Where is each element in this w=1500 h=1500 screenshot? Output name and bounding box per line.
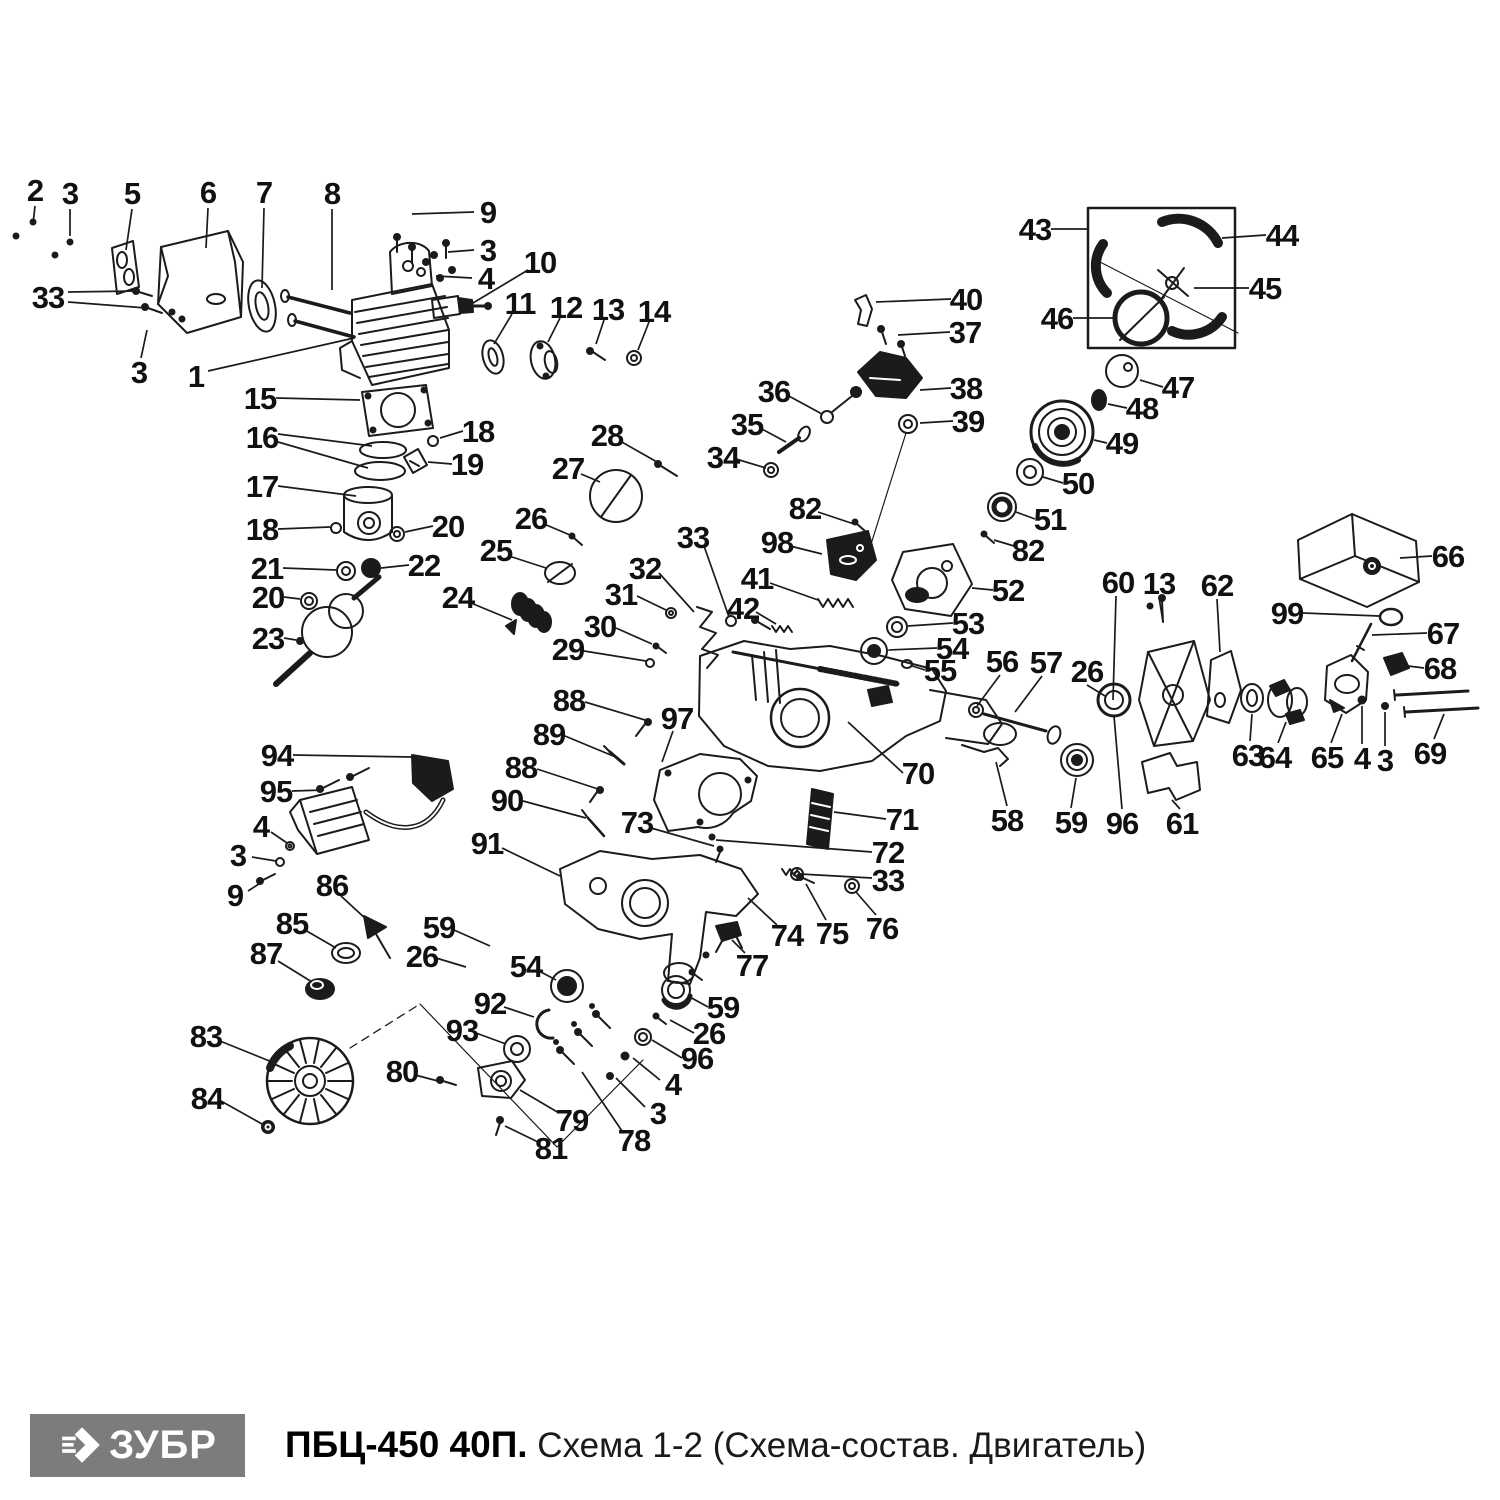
part-label: 13 — [592, 292, 625, 327]
part-label: 4 — [253, 809, 271, 844]
part-label: 4 — [1354, 741, 1372, 776]
part-label: 3 — [1377, 743, 1394, 778]
part-label: 1 — [188, 359, 205, 394]
zubr-logo: ЗУБР — [30, 1414, 245, 1477]
part-label: 11 — [505, 286, 537, 321]
part-label: 81 — [535, 1131, 568, 1166]
part-label: 26 — [1071, 654, 1104, 689]
leader-line — [276, 398, 360, 400]
leader-line — [1217, 599, 1220, 652]
leader-line — [790, 546, 822, 554]
part-label: 25 — [480, 533, 513, 568]
part-label: 43 — [1019, 212, 1052, 247]
leader-line — [305, 930, 336, 948]
part-label: 91 — [471, 826, 504, 861]
leader-line — [278, 442, 368, 468]
exploded-parts-diagram: 2356789341011121314333115161718181920212… — [0, 0, 1500, 1390]
part-label: 65 — [1311, 740, 1344, 775]
leader-line — [1408, 666, 1424, 668]
part-label: 89 — [533, 717, 566, 752]
part-label: 82 — [1012, 533, 1044, 568]
diagram-artwork — [14, 208, 1479, 1147]
leader-line — [509, 556, 546, 568]
model-name: ПБЦ-450 40П. — [285, 1424, 528, 1465]
leader-line — [293, 755, 412, 757]
leader-line — [206, 208, 208, 248]
leader-line — [633, 1058, 660, 1080]
part-label: 60 — [1102, 565, 1134, 600]
leader-line — [537, 769, 598, 789]
leader-line — [834, 812, 886, 819]
part-label: 64 — [1259, 740, 1293, 775]
part-label: 52 — [992, 573, 1024, 608]
part-label: 44 — [1266, 218, 1300, 253]
part-label: 88 — [553, 683, 586, 718]
part-label: 48 — [1126, 391, 1159, 426]
part-label: 59 — [1055, 805, 1088, 840]
part-label: 74 — [771, 918, 805, 953]
part-label: 9 — [227, 878, 244, 913]
leader-line — [920, 388, 951, 390]
part-label: 90 — [491, 783, 523, 818]
part-label: 3 — [650, 1096, 667, 1131]
leader-line — [544, 524, 570, 535]
leader-line — [972, 588, 993, 590]
part-label: 96 — [681, 1041, 714, 1076]
part-label: 2 — [27, 173, 43, 208]
leader-line — [271, 832, 287, 843]
part-label: 18 — [246, 512, 279, 547]
part-label: 95 — [260, 774, 293, 809]
leader-line — [252, 857, 276, 861]
part-label: 47 — [1162, 370, 1194, 405]
leader-line — [1016, 512, 1035, 519]
leader-line — [278, 961, 312, 982]
part-label: 84 — [191, 1081, 225, 1116]
part-label: 66 — [1432, 539, 1465, 574]
part-label: 37 — [949, 315, 981, 350]
part-label: 86 — [316, 868, 349, 903]
leader-line — [920, 421, 953, 423]
leader-line — [1108, 404, 1127, 408]
part-label: 51 — [1034, 502, 1067, 537]
leader-line — [278, 527, 330, 529]
part-label: 46 — [1041, 301, 1074, 336]
leader-line — [126, 209, 132, 250]
part-label: 75 — [816, 916, 849, 951]
leader-line — [1043, 477, 1063, 483]
schema-name: Схема 1-2 (Схема-состав. Двигатель) — [528, 1426, 1147, 1465]
part-label: 26 — [515, 501, 548, 536]
leader-line — [292, 790, 324, 791]
part-label: 88 — [505, 750, 538, 785]
part-label: 33 — [872, 863, 905, 898]
part-label: 3 — [230, 838, 247, 873]
leader-line — [448, 250, 474, 252]
leader-line — [584, 651, 646, 661]
leader-line — [405, 526, 433, 532]
part-label: 10 — [524, 245, 556, 280]
leader-line — [1250, 714, 1252, 741]
part-label: 56 — [986, 644, 1019, 679]
leader-line — [220, 1041, 272, 1062]
part-label: 16 — [246, 420, 279, 455]
leader-line — [1303, 613, 1379, 616]
part-label: 92 — [474, 986, 506, 1021]
part-label: 71 — [886, 802, 919, 837]
leader-line — [616, 628, 652, 644]
part-label: 9 — [480, 195, 497, 230]
zubr-arrow-icon — [58, 1422, 104, 1468]
part-label: 97 — [661, 701, 693, 736]
leader-line — [1015, 676, 1042, 712]
leader-line — [787, 395, 822, 414]
leader-line — [436, 958, 466, 967]
leader-line — [68, 302, 146, 308]
leader-line — [454, 930, 490, 946]
part-label: 8 — [324, 176, 341, 211]
leader-line — [736, 459, 766, 468]
leader-line — [278, 434, 372, 446]
part-label: 28 — [591, 418, 624, 453]
part-label: 42 — [727, 591, 759, 626]
leader-line — [278, 486, 356, 496]
leader-line — [440, 431, 463, 438]
leader-line — [428, 462, 452, 464]
part-label: 29 — [552, 632, 585, 667]
part-label: 73 — [621, 805, 654, 840]
part-label: 38 — [950, 371, 983, 406]
part-label: 14 — [638, 294, 672, 329]
zubr-logo-text: ЗУБР — [109, 1425, 217, 1465]
leader-line — [670, 1020, 694, 1033]
leader-line — [876, 299, 951, 302]
part-label: 45 — [1249, 271, 1282, 306]
part-label: 20 — [252, 580, 284, 615]
leader-line — [760, 428, 786, 442]
leader-line — [284, 638, 296, 640]
leader-line — [1222, 235, 1266, 238]
part-label: 76 — [866, 911, 899, 946]
leader-line — [68, 291, 134, 292]
part-label: 4 — [665, 1067, 683, 1102]
leader-line — [800, 874, 872, 878]
leader-line — [616, 1078, 645, 1107]
leader-line — [770, 583, 818, 600]
leader-line — [1140, 380, 1163, 387]
leader-line — [848, 722, 903, 773]
part-label: 78 — [618, 1123, 651, 1158]
part-label: 80 — [386, 1054, 418, 1089]
part-label: 15 — [244, 381, 277, 416]
part-label: 17 — [246, 469, 278, 504]
part-label: 87 — [250, 936, 282, 971]
part-label: 83 — [190, 1019, 223, 1054]
leader-line — [504, 1007, 534, 1017]
diagram-canvas: 2356789341011121314333115161718181920212… — [0, 0, 1500, 1390]
part-label: 24 — [442, 580, 476, 615]
leader-line — [248, 882, 262, 891]
leader-line — [898, 332, 950, 335]
leader-line — [996, 762, 1007, 806]
part-label: 99 — [1271, 596, 1304, 631]
part-label: 12 — [550, 290, 582, 325]
leader-line — [412, 212, 474, 214]
leader-line — [284, 597, 300, 599]
page: 2356789341011121314333115161718181920212… — [0, 0, 1500, 1500]
part-label: 23 — [252, 621, 285, 656]
leader-line — [283, 568, 336, 570]
part-label: 19 — [451, 447, 484, 482]
leader-line — [141, 330, 147, 358]
part-label: 27 — [552, 451, 584, 486]
leader-line — [565, 736, 618, 758]
part-label: 93 — [446, 1013, 479, 1048]
part-label: 55 — [924, 653, 957, 688]
leader-line — [208, 338, 354, 371]
part-label: 68 — [1424, 651, 1457, 686]
leader-line — [1400, 556, 1432, 558]
leader-line — [652, 1040, 682, 1058]
part-labels-layer: 2356789341011121314333115161718181920212… — [27, 173, 1465, 1166]
leader-line — [523, 801, 586, 818]
leader-line — [977, 675, 1000, 706]
leader-line — [637, 596, 666, 610]
leader-line — [1071, 778, 1076, 808]
leader-line — [659, 573, 694, 612]
leader-line — [1372, 633, 1427, 635]
part-label: 5 — [124, 176, 141, 211]
part-label: 3 — [131, 355, 148, 390]
part-label: 26 — [406, 939, 439, 974]
part-label: 20 — [432, 509, 464, 544]
part-label: 69 — [1414, 736, 1447, 771]
leader-line — [221, 1101, 262, 1124]
part-label: 39 — [952, 404, 985, 439]
leader-line — [585, 702, 645, 720]
leader-line — [1114, 716, 1122, 809]
leader-line — [704, 546, 729, 617]
leader-line — [818, 512, 854, 524]
part-label: 50 — [1062, 466, 1094, 501]
part-label: 94 — [261, 738, 295, 773]
leader-line — [688, 996, 708, 1007]
part-label: 3 — [62, 176, 79, 211]
leader-line — [620, 441, 657, 462]
leader-line — [1331, 714, 1342, 743]
leader-line — [381, 565, 409, 568]
footer-bar: ЗУБР ПБЦ-450 40П. Схема 1-2 (Схема-соста… — [0, 1390, 1500, 1500]
leader-line — [908, 623, 953, 626]
part-label: 33 — [32, 280, 65, 315]
part-label: 18 — [462, 414, 495, 449]
part-label: 13 — [1143, 566, 1176, 601]
part-label: 54 — [510, 949, 544, 984]
leader-line — [471, 603, 512, 620]
part-label: 22 — [408, 548, 440, 583]
part-label: 58 — [991, 803, 1024, 838]
part-label: 67 — [1427, 616, 1459, 651]
part-label: 82 — [789, 491, 821, 526]
leader-line — [716, 840, 872, 852]
part-label: 40 — [950, 282, 982, 317]
part-label: 30 — [584, 609, 616, 644]
leader-line — [505, 1126, 538, 1142]
part-label: 32 — [629, 551, 661, 586]
diagram-title: ПБЦ-450 40П. Схема 1-2 (Схема-состав. Дв… — [285, 1424, 1146, 1466]
leader-line — [502, 848, 560, 876]
part-label: 98 — [761, 525, 794, 560]
part-label: 62 — [1201, 568, 1233, 603]
part-label: 49 — [1106, 426, 1139, 461]
leader-line — [476, 1033, 506, 1044]
leader-line — [520, 1090, 559, 1113]
part-label: 33 — [677, 520, 710, 555]
part-label: 35 — [731, 407, 764, 442]
part-label: 61 — [1166, 806, 1199, 841]
leader-line — [262, 208, 264, 288]
leader-line — [651, 828, 714, 846]
part-label: 57 — [1030, 645, 1062, 680]
part-label: 96 — [1106, 806, 1139, 841]
leader-line — [415, 1075, 438, 1081]
part-label: 6 — [200, 175, 217, 210]
part-label: 7 — [256, 175, 272, 210]
part-label: 77 — [736, 948, 768, 983]
part-label: 70 — [902, 756, 934, 791]
part-label: 36 — [758, 374, 791, 409]
leader-line — [888, 648, 937, 650]
part-label: 34 — [707, 440, 741, 475]
leader-line — [806, 884, 826, 920]
